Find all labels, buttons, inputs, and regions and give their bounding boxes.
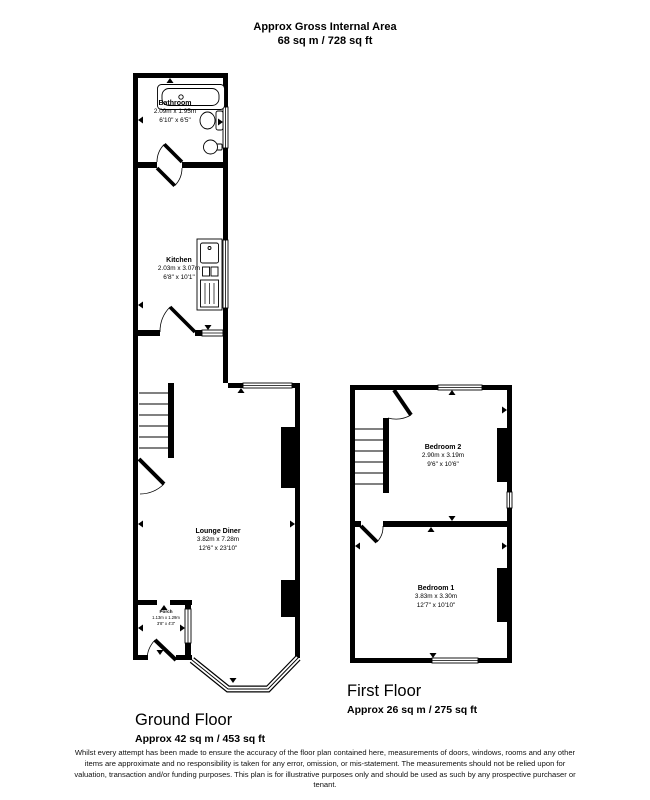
dimension-arrow: [230, 678, 237, 683]
floor-name: Ground Floor: [135, 711, 265, 729]
door-leaf: [394, 390, 411, 415]
hob-left: [203, 267, 210, 276]
door-arc: [157, 144, 164, 162]
doors: [139, 144, 195, 660]
dimension-arrow: [502, 543, 507, 550]
floor-name: First Floor: [347, 682, 477, 700]
dimension-arrow: [238, 388, 245, 393]
dimension-arrows: [138, 78, 295, 683]
door-arc: [175, 168, 182, 186]
room-name: Bedroom 1: [415, 584, 457, 593]
room-dim-imperial: 9'6" x 10'6": [422, 461, 464, 470]
dimension-arrow: [138, 302, 143, 309]
dimension-arrow: [430, 653, 437, 658]
room-name: Bathroom: [154, 99, 196, 108]
disclaimer-text: Whilst every attempt has been made to en…: [72, 748, 578, 791]
sink-tap: [208, 247, 211, 250]
room-dim-imperial: 3'8" x 4'3": [152, 621, 180, 627]
room-dim-metric: 3.83m x 3.30m: [415, 593, 457, 602]
page-title: Approx Gross Internal Area: [0, 21, 650, 35]
toilet-bowl: [200, 112, 215, 129]
dimension-arrow: [290, 521, 295, 528]
room-dim-imperial: 12'6" x 23'10": [195, 545, 240, 554]
basin-bowl: [204, 140, 218, 154]
door-leaf: [157, 168, 175, 186]
kitchen-sink-icon: [197, 239, 222, 310]
dimension-arrow: [428, 527, 435, 532]
dimension-arrow: [167, 78, 174, 83]
bay-window: [192, 658, 298, 689]
dimension-arrow: [449, 390, 456, 395]
room-dim-metric: 3.82m x 7.28m: [195, 536, 240, 545]
door-arc: [140, 484, 164, 494]
door-arc: [388, 415, 411, 419]
room-label-bedroom-2: Bedroom 2 2.90m x 3.19m 9'6" x 10'6": [422, 443, 464, 469]
floor-area: Approx 26 sq m / 275 sq ft: [347, 704, 477, 716]
door-leaf: [164, 144, 182, 162]
room-label-kitchen: Kitchen 2.03m x 3.07m 6'8" x 10'1": [158, 256, 200, 282]
room-label-lounge-diner: Lounge Diner 3.82m x 7.28m 12'6" x 23'10…: [195, 527, 240, 553]
floorplan-page: Approx Gross Internal Area 68 sq m / 728…: [0, 0, 650, 800]
stairs-icon: [355, 429, 383, 484]
dimension-arrow: [138, 117, 143, 124]
windows: [185, 107, 292, 643]
door-arc: [147, 640, 155, 660]
first-floor-plan: [350, 385, 512, 663]
dimension-arrow: [138, 521, 143, 528]
dimension-arrow: [157, 650, 164, 655]
hob-right: [211, 267, 218, 276]
room-dim-imperial: 6'8" x 10'1": [158, 274, 200, 283]
room-dim-imperial: 12'7" x 10'10": [415, 602, 457, 611]
floor-area: Approx 42 sq m / 453 sq ft: [135, 733, 265, 745]
room-dim-imperial: 6'10" x 6'5": [154, 117, 196, 126]
room-name: Bedroom 2: [422, 443, 464, 452]
sink-bowl: [201, 243, 219, 263]
basin-icon: [204, 140, 223, 154]
dimension-arrow: [138, 625, 143, 632]
dimension-arrow: [180, 625, 185, 632]
room-name: Lounge Diner: [195, 527, 240, 536]
room-label-bathroom: Bathroom 2.09m x 1.95m 6'10" x 6'5": [154, 99, 196, 125]
walls: [350, 385, 512, 663]
door-arc: [377, 526, 383, 542]
room-label-porch: Porch 1.13m x 1.29m 3'8" x 4'3": [152, 609, 180, 627]
door-leaf: [139, 459, 164, 484]
room-name: Kitchen: [158, 256, 200, 265]
first-floor-caption: First Floor Approx 26 sq m / 275 sq ft: [347, 682, 477, 716]
room-dim-metric: 2.09m x 1.95m: [154, 108, 196, 117]
stairs-icon: [139, 393, 168, 448]
header: Approx Gross Internal Area 68 sq m / 728…: [0, 21, 650, 48]
door-leaf: [170, 307, 195, 332]
dimension-arrow: [449, 516, 456, 521]
room-dim-metric: 2.90m x 3.19m: [422, 452, 464, 461]
door-arc: [160, 307, 170, 332]
dimension-arrow: [502, 407, 507, 414]
dimension-arrow: [355, 543, 360, 550]
ground-floor-caption: Ground Floor Approx 42 sq m / 453 sq ft: [135, 711, 265, 745]
room-dim-metric: 2.03m x 3.07m: [158, 265, 200, 274]
room-dim-metric: 1.13m x 1.29m: [152, 615, 180, 621]
room-label-bedroom-1: Bedroom 1 3.83m x 3.30m 12'7" x 10'10": [415, 584, 457, 610]
bay-glass: [192, 658, 298, 689]
page-subtitle: 68 sq m / 728 sq ft: [0, 35, 650, 49]
walls: [133, 73, 300, 660]
floorplan-svg: [0, 0, 650, 800]
dimension-arrow: [205, 325, 212, 330]
door-leaf: [361, 526, 377, 542]
ground-floor-plan: [133, 73, 300, 689]
